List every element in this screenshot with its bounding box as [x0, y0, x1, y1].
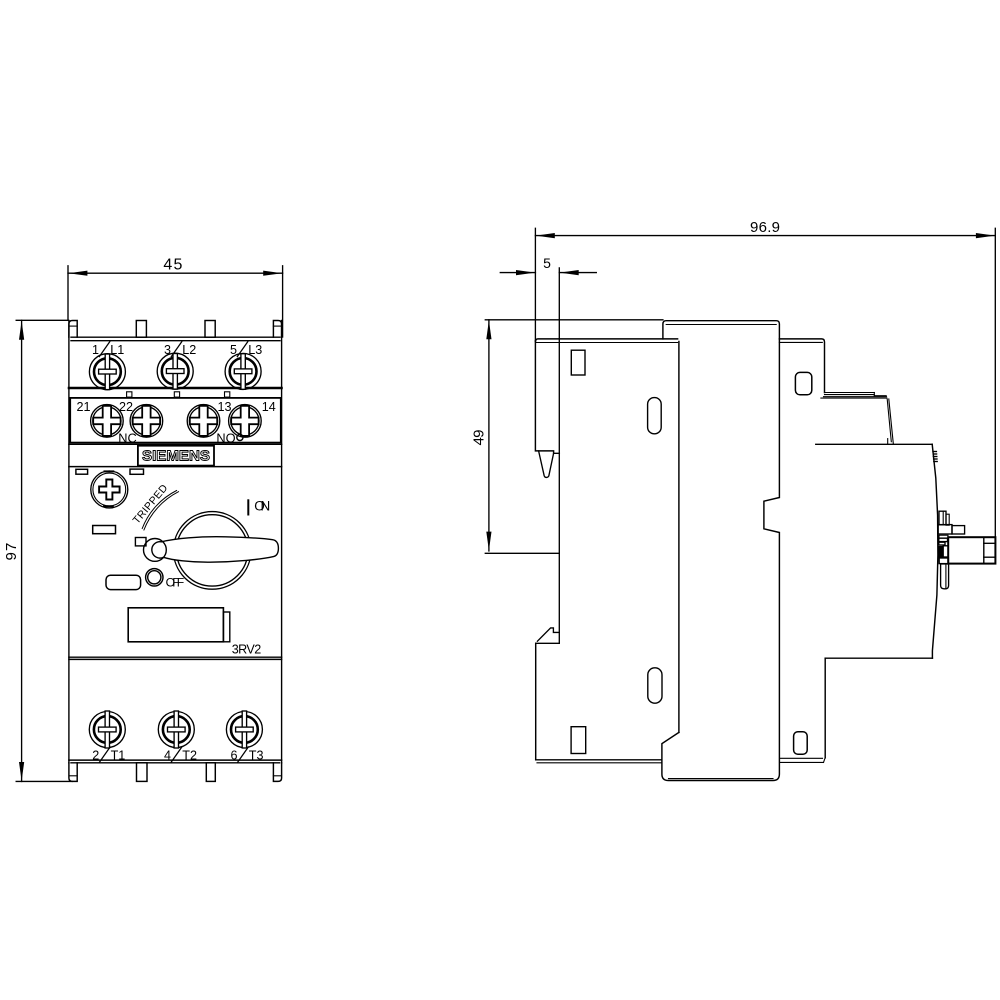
svg-text:SIEMENS: SIEMENS: [142, 447, 210, 464]
svg-text:L3: L3: [248, 343, 262, 357]
svg-text:97: 97: [3, 541, 20, 560]
svg-text:22: 22: [119, 400, 133, 414]
svg-text:L1: L1: [110, 343, 124, 357]
svg-text:L2: L2: [182, 343, 196, 357]
svg-text:NC: NC: [118, 431, 136, 446]
svg-text:49: 49: [471, 430, 488, 446]
svg-text:1: 1: [92, 343, 99, 357]
svg-text:3: 3: [164, 343, 171, 357]
svg-text:NO: NO: [216, 431, 235, 446]
svg-text:5: 5: [543, 255, 551, 271]
svg-text:45: 45: [163, 256, 183, 273]
svg-text:ON: ON: [254, 498, 270, 513]
svg-text:5: 5: [230, 343, 237, 357]
svg-text:OFF: OFF: [166, 575, 185, 589]
svg-text:3RV2: 3RV2: [232, 643, 262, 657]
svg-text:21: 21: [76, 400, 90, 414]
svg-text:96.9: 96.9: [750, 219, 780, 236]
svg-text:13: 13: [217, 400, 231, 414]
svg-text:14: 14: [262, 400, 276, 414]
